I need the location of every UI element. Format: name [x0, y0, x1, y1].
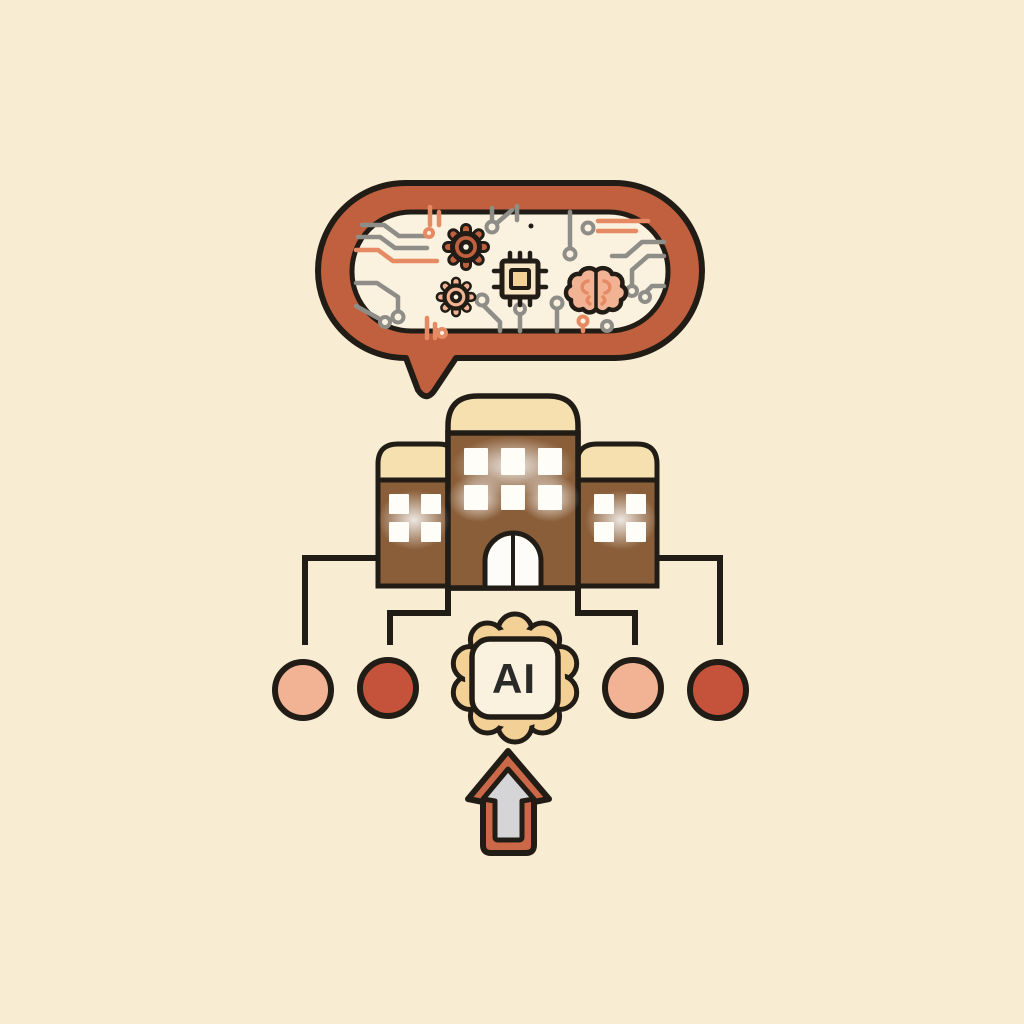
circuit-node	[477, 295, 488, 306]
illustration-stage: AI	[0, 0, 1024, 1024]
circuit-node	[393, 312, 404, 323]
circuit-node	[552, 298, 563, 309]
circle-node	[605, 660, 661, 716]
gear-hole	[452, 293, 461, 302]
window	[626, 522, 646, 542]
circuit-dot	[529, 224, 534, 229]
window	[389, 494, 409, 514]
illustration-canvas: AI	[0, 0, 1024, 1024]
window	[538, 485, 562, 510]
brain-icon	[566, 268, 626, 312]
circuit-node	[425, 229, 433, 237]
circuit-node	[627, 286, 637, 296]
window	[594, 494, 614, 514]
window	[421, 494, 441, 514]
circle-node	[690, 662, 746, 718]
ai-flower-badge: AI	[453, 614, 576, 742]
ai-badge-label: AI	[492, 655, 536, 702]
circuit-node	[579, 317, 588, 326]
window	[464, 448, 488, 475]
window	[626, 494, 646, 514]
circuit-node	[602, 321, 612, 331]
window	[501, 448, 525, 475]
circuit-node	[380, 317, 390, 327]
window	[538, 448, 562, 475]
gear-hole	[461, 242, 471, 252]
circle-node	[360, 660, 416, 716]
circle-node	[275, 662, 331, 718]
window	[464, 485, 488, 510]
circuit-node	[565, 249, 576, 260]
circuit-node	[640, 292, 650, 302]
circuit-node	[438, 329, 446, 337]
chip-core	[511, 270, 529, 288]
window	[421, 522, 441, 542]
window	[501, 485, 525, 510]
gear-icon	[441, 282, 472, 313]
window	[389, 522, 409, 542]
gear-icon	[448, 229, 484, 265]
chip-icon	[494, 253, 546, 305]
circuit-node	[583, 223, 594, 234]
window	[594, 522, 614, 542]
